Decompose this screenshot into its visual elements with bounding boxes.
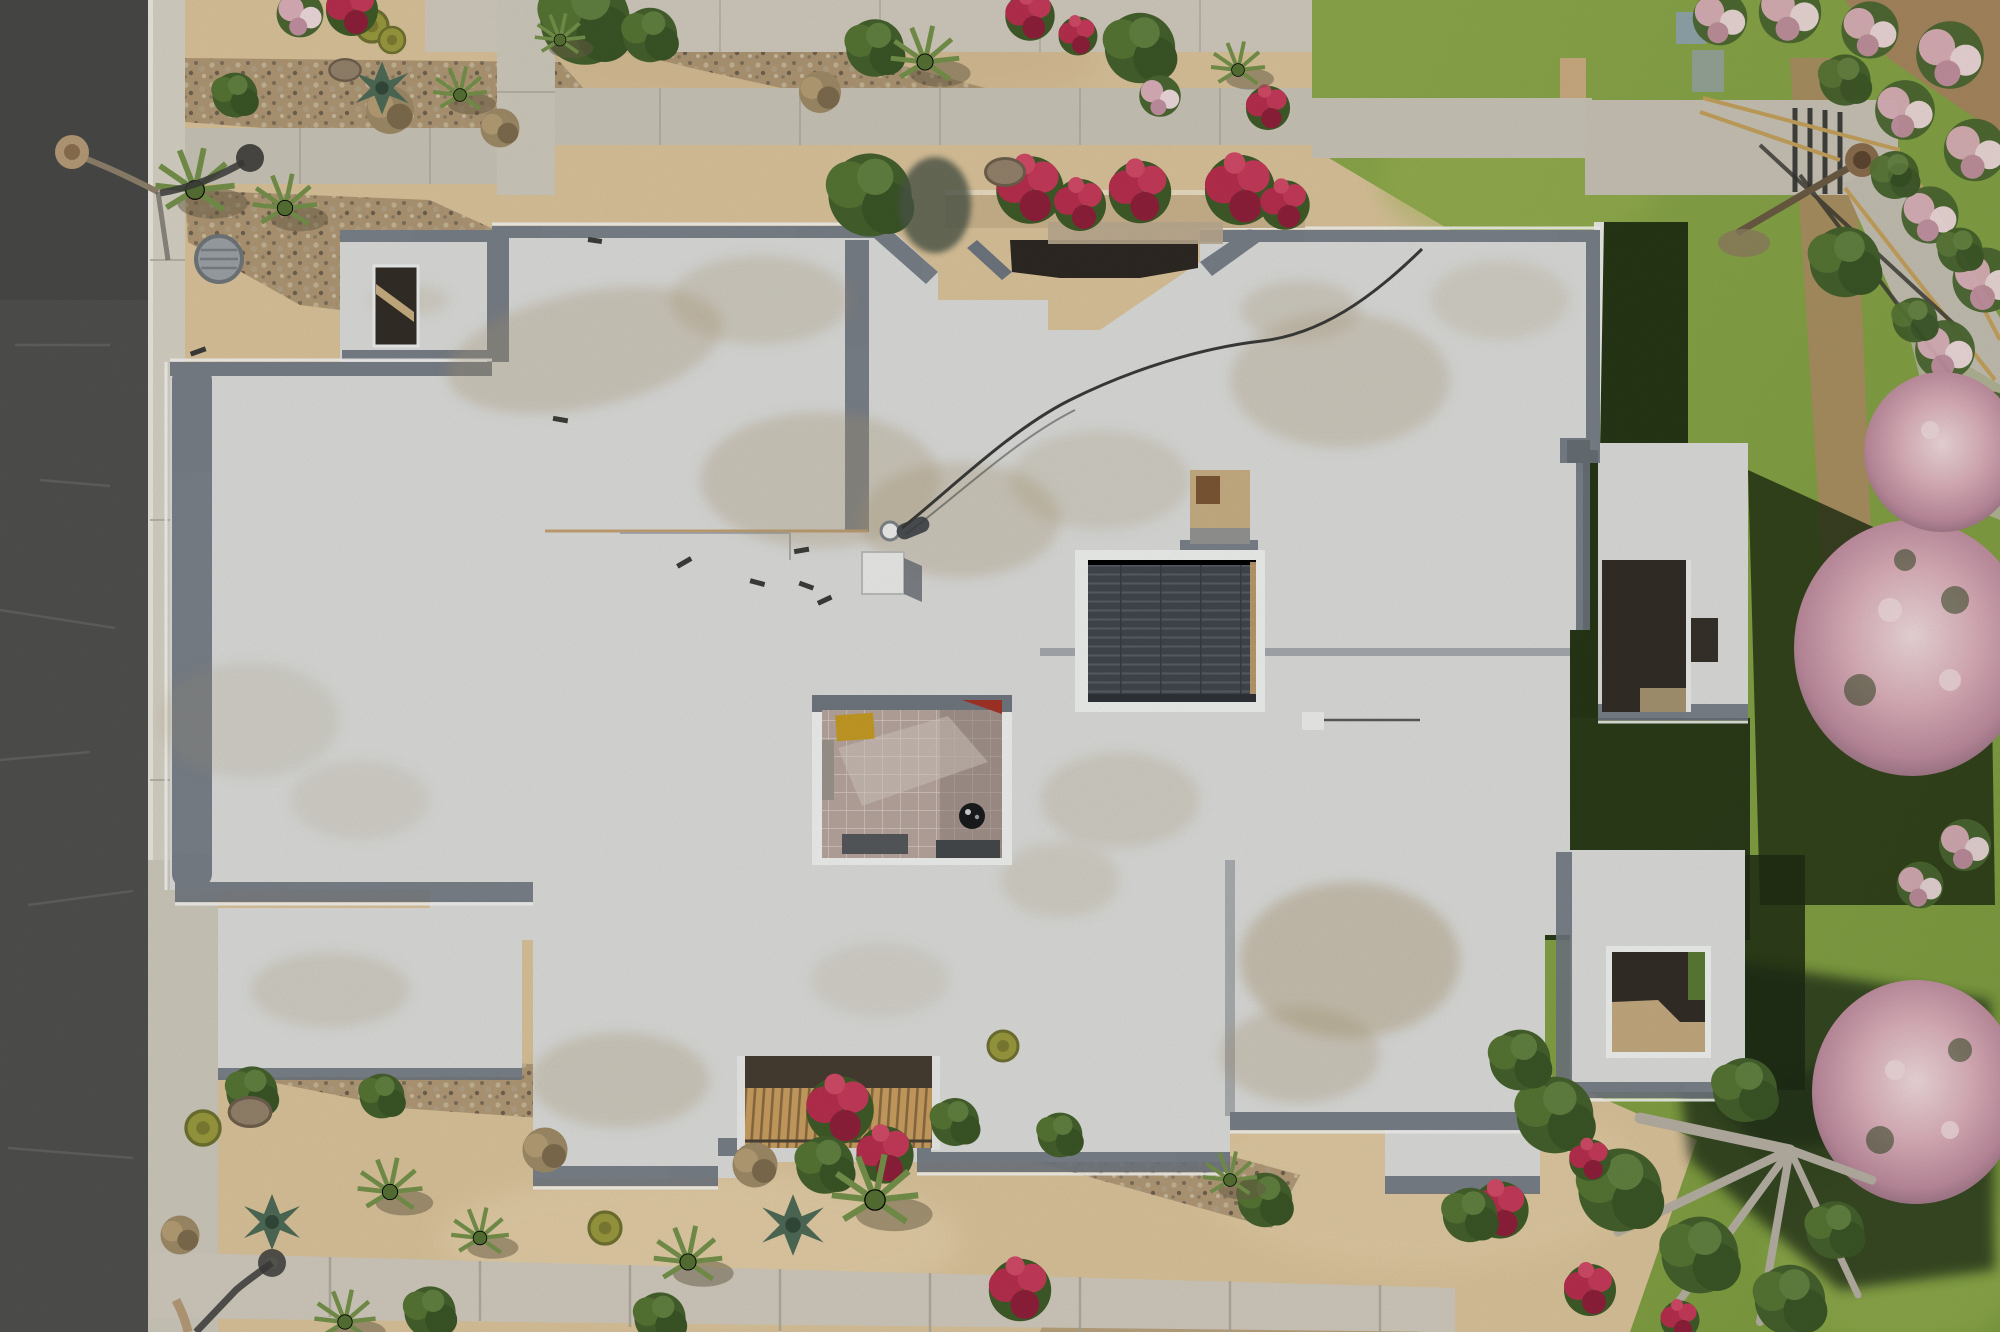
photo-grain [0, 0, 2000, 1332]
aerial-photo [0, 0, 2000, 1332]
